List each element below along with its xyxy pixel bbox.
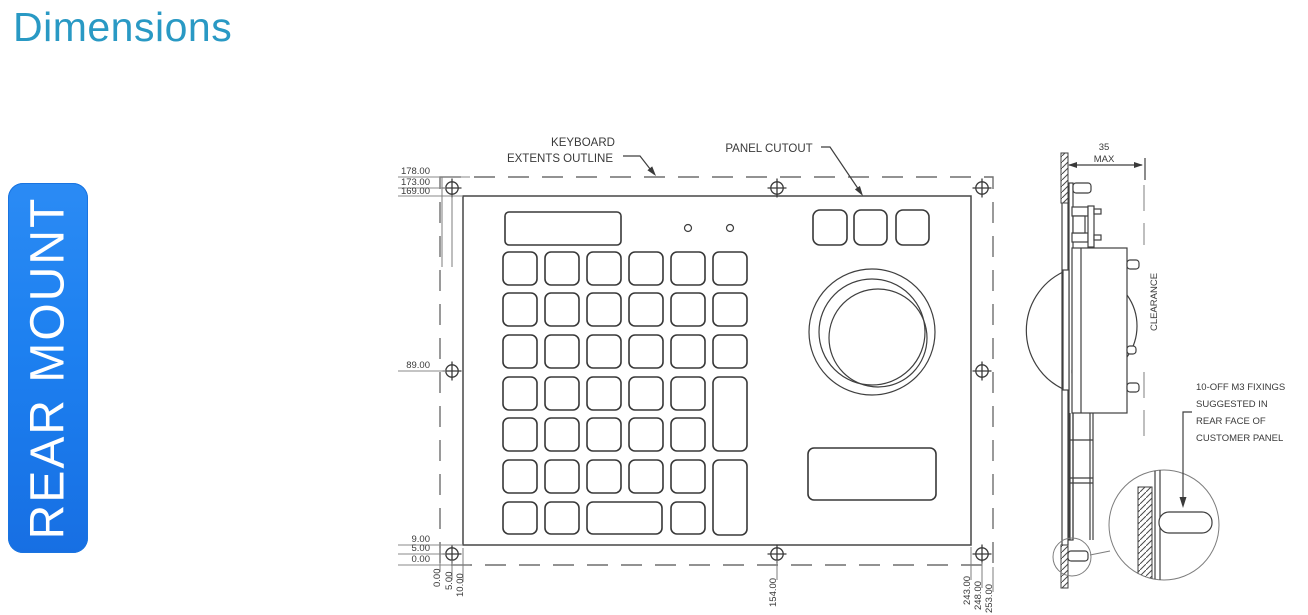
key-outline [503,377,537,410]
dim-label: 169.00 [401,186,430,197]
key-outline [671,418,705,451]
trackball-bezel [1063,270,1069,390]
connector-bracket-plate [1088,206,1094,247]
key-outline [503,293,537,326]
rear-stud [1127,346,1136,354]
dim-label: 154.00 [768,578,779,607]
fixings-note-line4: CUSTOMER PANEL [1196,433,1283,444]
dim-label: 10.00 [455,573,466,597]
key-outline [629,252,663,285]
dim-label: 0.00 [432,569,443,588]
fixings-note-line3: REAR FACE OF [1196,416,1266,427]
rear-stud [1127,260,1139,269]
connector-bracket-tab [1072,233,1088,242]
keyboard-extents-callout-line2: EXTENTS OUTLINE [507,153,613,165]
key-outline [503,502,537,534]
clearance-label: CLEARANCE [1149,273,1160,331]
fixings-note-line1: 10-OFF M3 FIXINGS [1196,382,1285,393]
depth-dim-value: 35 [1099,142,1110,153]
key-outline [629,335,663,368]
callout-leader-line [821,147,861,193]
key-outline [587,418,621,451]
front-view: KEYBOARD EXTENTS OUTLINE PANEL CUTOUT 17… [398,137,995,613]
key-outline [545,377,579,410]
key-outline [587,252,621,285]
key-outline [629,418,663,451]
key-outline [671,335,705,368]
key-outline [671,252,705,285]
leader-arrowhead-icon [1180,497,1187,508]
leader-arrowhead-icon [855,186,863,196]
key-outline [503,252,537,285]
fixings-note-line2: SUGGESTED IN [1196,399,1268,410]
mounting-stud [1073,183,1091,193]
key-outline [713,252,747,285]
key-outline [545,252,579,285]
connector-bracket-tab [1072,207,1088,216]
connector-bolt [1094,209,1101,214]
key-outline [545,460,579,493]
mounting-stud [1068,551,1088,561]
key-outline [545,293,579,326]
key-outline [629,377,663,410]
key-outline [671,377,705,410]
key-outline [587,377,621,410]
dim-label: 178.00 [401,166,430,177]
key-outline [629,293,663,326]
depth-dim-qualifier: MAX [1094,154,1115,165]
trackball-dome-arc [1026,272,1063,389]
key-outline [503,335,537,368]
m3-screw [1159,512,1212,533]
key-outline [629,460,663,493]
key-outline [671,460,705,493]
rear-stud [1127,383,1139,392]
fixing-hole-crosshair [973,362,992,381]
key-outline [545,335,579,368]
key-outline [503,418,537,451]
dim-label: 253.00 [984,584,995,613]
connector-body [1073,216,1085,233]
tall-key-outline [713,460,747,535]
dim-label: 89.00 [406,360,430,371]
dim-label: 5.00 [444,572,455,591]
key-outline [854,210,887,245]
key-outline [813,210,847,245]
wrist-pad-outline [808,448,936,500]
key-outline [587,335,621,368]
note-leader-line [1183,412,1192,502]
panel-hatch-section [1061,545,1068,588]
dim-label: 243.00 [962,576,973,605]
wide-key-outline [587,502,662,534]
detail-panel-hatch [1138,487,1152,583]
drawing-svg: KEYBOARD EXTENTS OUTLINE PANEL CUTOUT 17… [0,0,1308,615]
key-outline [671,293,705,326]
trackball-outer-ring [809,269,935,395]
key-outline [671,502,705,534]
detail-connector-line [1090,551,1110,555]
key-outline [587,460,621,493]
fixing-hole-crosshair [973,545,992,564]
trackball-ball [829,289,927,387]
dim-arrowhead-icon [1134,162,1143,168]
dim-label: 0.00 [412,554,431,565]
tall-key-outline [713,377,747,451]
keyboard-extents-callout-line1: KEYBOARD [551,137,615,149]
panel-hatch-section [1061,153,1068,203]
key-outline [713,335,747,368]
key-outline [587,293,621,326]
dim-label: 248.00 [973,581,984,610]
dim-label: 5.00 [412,543,431,554]
display-window-outline [505,212,621,245]
trackball-inner-ring [819,279,925,385]
keyboard-body [1072,248,1127,413]
fixing-hole-crosshair [768,179,787,198]
side-view: 35 MAX CLEARANCE [1026,142,1285,588]
key-outline [896,210,929,245]
connector-bolt [1094,235,1101,240]
fixing-hole-crosshair [973,179,992,198]
dim-arrowhead-icon [1068,162,1077,168]
key-outline [545,418,579,451]
page: Dimensions REAR MOUNT [0,0,1308,615]
led-indicator [727,225,734,232]
key-outline [713,293,747,326]
led-indicator [685,225,692,232]
panel-cutout-callout: PANEL CUTOUT [725,143,812,155]
key-outline [503,460,537,493]
key-outline [545,502,579,534]
